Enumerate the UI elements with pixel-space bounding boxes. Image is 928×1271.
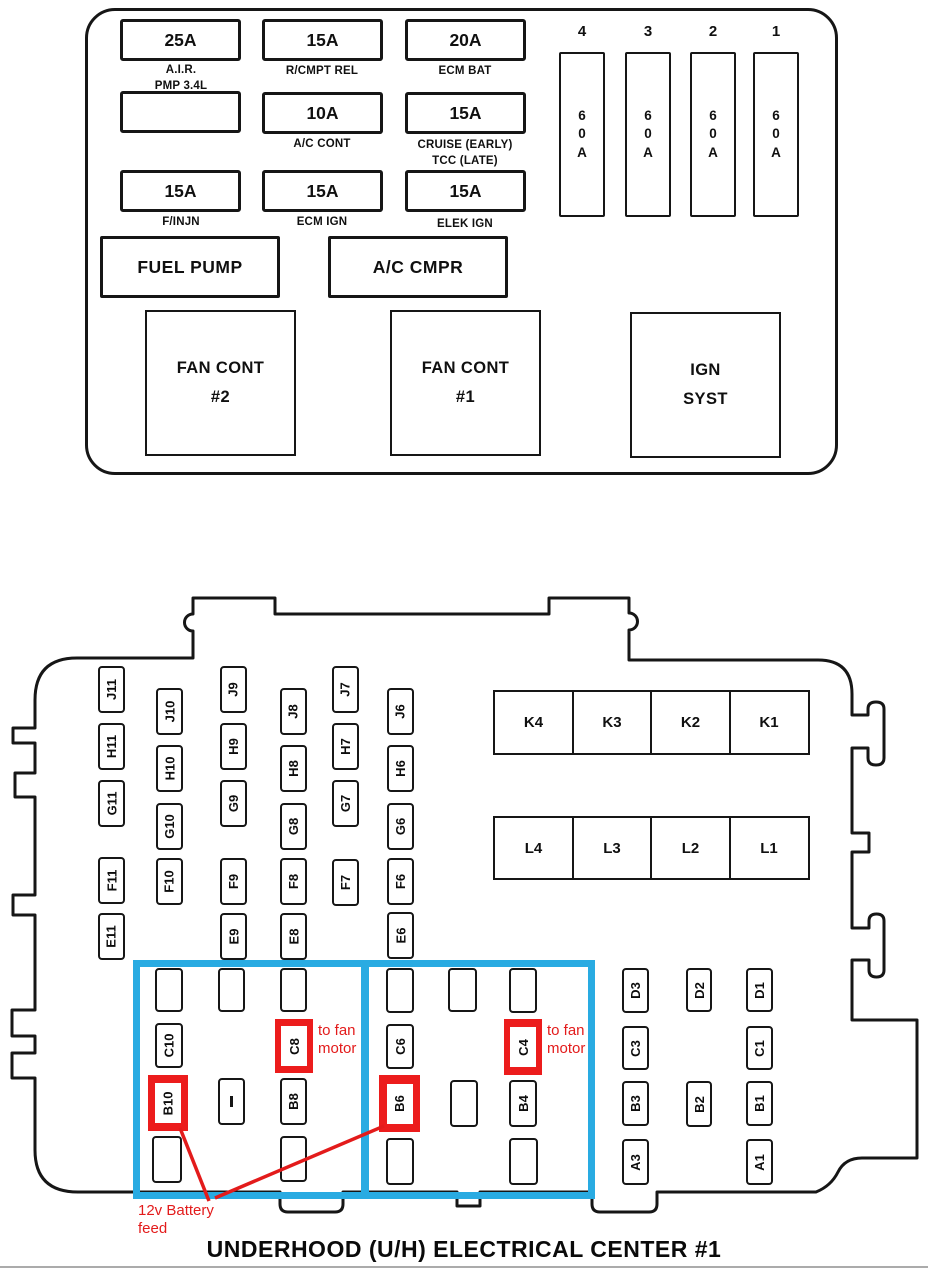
pin-C1: C1 (746, 1026, 773, 1070)
pin-A3: A3 (622, 1139, 649, 1185)
maxi-fuse-4-amp: 60A (576, 107, 588, 162)
cavity-K1: K1 (729, 690, 810, 755)
pin-B2: B2 (686, 1081, 712, 1127)
fuse-cruise-tcc: 15A (405, 92, 526, 134)
pin-E6: E6 (387, 912, 414, 959)
fan-motor-annotation-right: to fan motor (547, 1022, 585, 1058)
relay-ac-cmpr: A/C CMPR (328, 236, 508, 298)
battery-feed-annotation: 12v Battery feed (138, 1202, 214, 1238)
pin-F9: F9 (220, 858, 247, 905)
pin-H7: H7 (332, 723, 359, 770)
pin-E8: E8 (280, 913, 307, 960)
bottom-divider (0, 1266, 928, 1268)
pin-J9: J9 (220, 666, 247, 713)
maxi-fuse-1-amp: 60A (770, 107, 782, 162)
fuse-air-pump: 25A (120, 19, 241, 61)
pin-J6: J6 (387, 688, 414, 735)
fuse-box-diagram: 25A 15A 20A A.I.R. PMP 3.4L R/CMPT REL E… (0, 0, 928, 1271)
empty-cavity (386, 968, 414, 1013)
empty-cavity (280, 1136, 307, 1182)
pin-C3: C3 (622, 1026, 649, 1070)
pin-B10-highlight: B10 (148, 1075, 188, 1131)
fuse-f-injn: 15A (120, 170, 241, 212)
maxi-fuse-1-number: 1 (753, 23, 799, 40)
pin-G8: G8 (280, 803, 307, 850)
pin-G7: G7 (332, 780, 359, 827)
empty-cavity (152, 1136, 182, 1183)
pin-D1: D1 (746, 968, 773, 1012)
pin-C4: C4 (510, 1027, 536, 1067)
pin-B8: B8 (280, 1078, 307, 1125)
pin-H6: H6 (387, 745, 414, 792)
fuse-ac-cont: 10A (262, 92, 383, 134)
pin-H8: H8 (280, 745, 307, 792)
empty-cavity (386, 1138, 414, 1185)
relay-fuel-pump: FUEL PUMP (100, 236, 280, 298)
cavity-L4: L4 (493, 816, 574, 880)
maxi-fuse-2-amp: 60A (707, 107, 719, 162)
k-row: K4 K3 K2 K1 (493, 690, 810, 755)
maxi-fuse-2: 60A (690, 52, 736, 217)
empty-cavity (218, 968, 245, 1012)
pin-H9: H9 (220, 723, 247, 770)
fuse-ecm-bat: 20A (405, 19, 526, 61)
pin-H11: H11 (98, 723, 125, 770)
pin-C4-highlight: C4 (504, 1019, 542, 1075)
pin-B3: B3 (622, 1081, 649, 1126)
pin-F11: F11 (98, 857, 125, 904)
pin-F10: F10 (156, 858, 183, 905)
pin-B6: B6 (387, 1084, 413, 1124)
fuse-ecm-ign: 15A (262, 170, 383, 212)
pin-J7: J7 (332, 666, 359, 713)
cavity-L2: L2 (650, 816, 731, 880)
pin-J11: J11 (98, 666, 125, 713)
fuse-blank (120, 91, 241, 133)
pin-E9: E9 (220, 913, 247, 960)
pin-C8-highlight: C8 (275, 1019, 313, 1073)
empty-cavity (280, 968, 307, 1012)
pin-B1: B1 (746, 1081, 773, 1126)
empty-cavity (509, 968, 537, 1013)
maxi-fuse-3-number: 3 (625, 23, 671, 40)
maxi-fuse-1: 60A (753, 52, 799, 217)
pin-F7: F7 (332, 859, 359, 906)
empty-cavity (509, 1138, 538, 1185)
diagram-title: UNDERHOOD (U/H) ELECTRICAL CENTER #1 (0, 1236, 928, 1263)
empty-cavity (450, 1080, 478, 1127)
pin-C6: C6 (386, 1024, 414, 1069)
fuse-cruise-tcc-label: CRUISE (EARLY) TCC (LATE) (374, 138, 556, 169)
maxi-fuse-2-number: 2 (690, 23, 736, 40)
maxi-fuse-4: 60A (559, 52, 605, 217)
module-fan-cont-2: FAN CONT #2 (145, 310, 296, 456)
empty-cavity (448, 968, 477, 1012)
maxi-fuse-3-amp: 60A (642, 107, 654, 162)
module-ign-syst: IGN SYST (630, 312, 781, 458)
empty-cavity (155, 968, 183, 1012)
fan-motor-annotation-left: to fan motor (318, 1022, 356, 1058)
fuse-ecm-bat-label: ECM BAT (374, 64, 556, 80)
pin-G6: G6 (387, 803, 414, 850)
pin-D3: D3 (622, 968, 649, 1013)
l-row: L4 L3 L2 L1 (493, 816, 810, 880)
pin-E11: E11 (98, 913, 125, 960)
fuse-elek-ign: 15A (405, 170, 526, 212)
pin-B6-highlight: B6 (379, 1075, 420, 1132)
cavity-K4: K4 (493, 690, 574, 755)
fuse-rcmpt-rel: 15A (262, 19, 383, 61)
pin-J10: J10 (156, 688, 183, 735)
empty-cavity-tick (218, 1078, 245, 1125)
pin-F8: F8 (280, 858, 307, 905)
pin-F6: F6 (387, 858, 414, 905)
cavity-K2: K2 (650, 690, 731, 755)
cavity-K3: K3 (572, 690, 653, 755)
pin-B10: B10 (155, 1083, 181, 1123)
pin-G9: G9 (220, 780, 247, 827)
pin-C8: C8 (281, 1026, 307, 1066)
cavity-L3: L3 (572, 816, 653, 880)
cavity-L1: L1 (729, 816, 810, 880)
pin-A1: A1 (746, 1139, 773, 1185)
pin-G10: G10 (156, 803, 183, 850)
module-fan-cont-1: FAN CONT #1 (390, 310, 541, 456)
pin-H10: H10 (156, 745, 183, 792)
pin-D2: D2 (686, 968, 712, 1012)
maxi-fuse-4-number: 4 (559, 23, 605, 40)
pin-B4: B4 (509, 1080, 537, 1127)
pin-G11: G11 (98, 780, 125, 827)
maxi-fuse-3: 60A (625, 52, 671, 217)
pin-J8: J8 (280, 688, 307, 735)
fuse-elek-ign-label: ELEK IGN (374, 217, 556, 233)
pin-C10: C10 (155, 1023, 183, 1068)
